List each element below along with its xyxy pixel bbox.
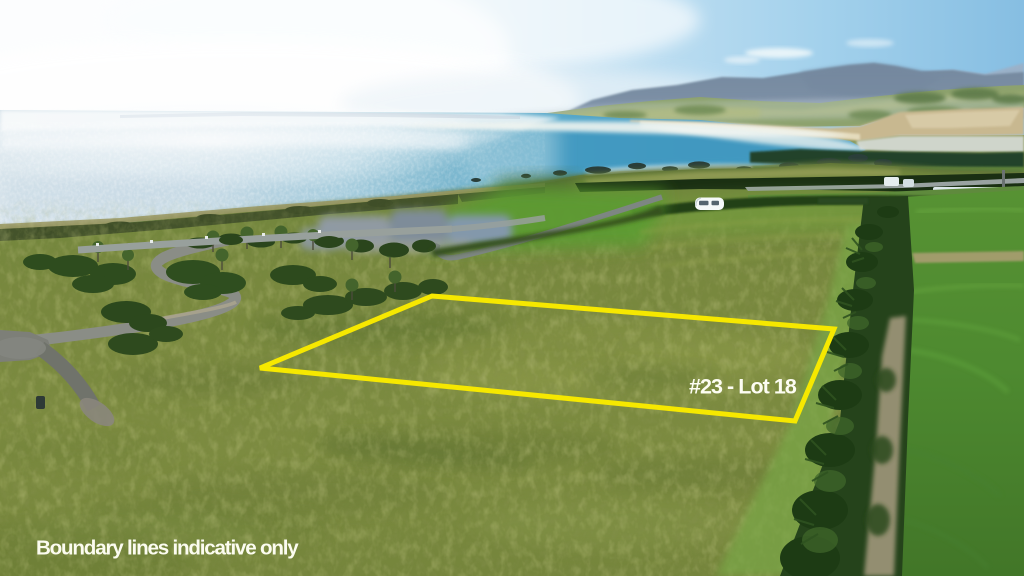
- svg-text:#23 - Lot 18: #23 - Lot 18: [689, 375, 797, 399]
- svg-text:Boundary lines indicative only: Boundary lines indicative only: [36, 537, 299, 560]
